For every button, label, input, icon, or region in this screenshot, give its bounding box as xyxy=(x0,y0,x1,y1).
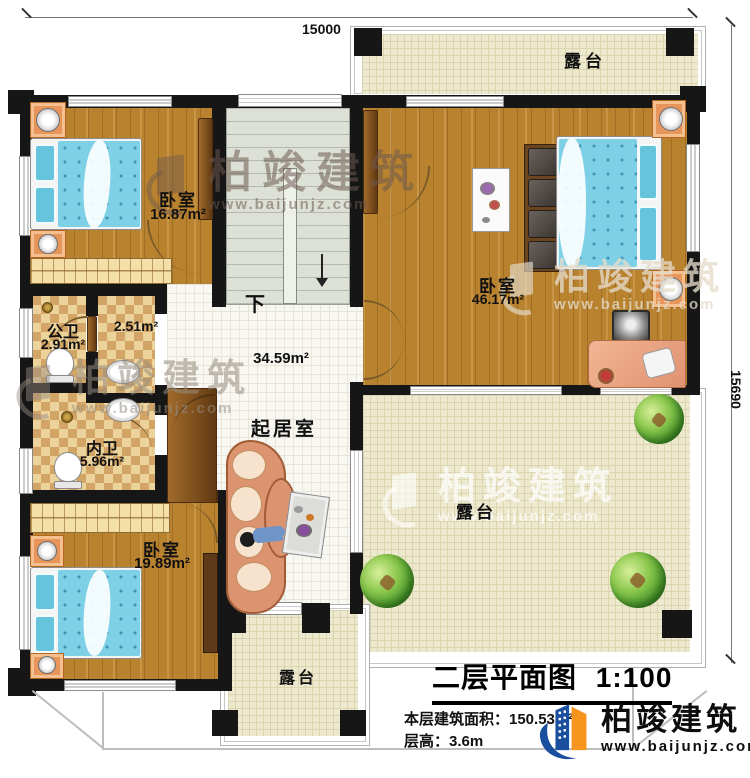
pillow xyxy=(34,573,56,611)
door-bedroom-right xyxy=(363,110,378,214)
wall-stairs-right xyxy=(350,95,363,307)
column-post xyxy=(354,28,382,56)
wall-bathroom-right xyxy=(155,282,167,314)
column-post xyxy=(662,610,692,638)
potted-tree xyxy=(634,394,684,444)
sofa-cushion xyxy=(230,486,262,522)
flower-decor xyxy=(480,182,495,195)
roof-eave-diagonal xyxy=(32,690,104,749)
brand-text: 柏竣建筑 www.baijunjz.com xyxy=(601,704,750,755)
lamp xyxy=(38,234,58,254)
column-post xyxy=(340,710,366,736)
tv xyxy=(612,310,650,342)
window xyxy=(410,386,562,395)
dimension-top-value: 15000 xyxy=(302,21,341,37)
window xyxy=(238,94,342,107)
lamp xyxy=(659,107,683,131)
terrace-top-floor xyxy=(362,34,698,94)
room-area-living: 34.59m² xyxy=(253,350,309,367)
window xyxy=(350,450,363,553)
window xyxy=(68,96,172,107)
window xyxy=(686,144,700,252)
lamp xyxy=(37,541,57,561)
decor-item xyxy=(294,506,303,513)
drawing-scale: 1:100 xyxy=(596,662,673,693)
wall-stairs-left xyxy=(212,95,226,307)
window xyxy=(19,448,33,494)
potted-tree xyxy=(610,552,666,608)
pillow xyxy=(638,144,658,200)
room-label-terrace-bottom: 露台 xyxy=(279,664,317,688)
washbasin xyxy=(106,360,140,384)
column-post xyxy=(666,28,694,56)
room-label-terrace-top: 露台 xyxy=(564,47,606,72)
flower-decor xyxy=(598,368,614,384)
column-post xyxy=(212,710,238,736)
floor-drain xyxy=(42,302,53,313)
desk-shelf xyxy=(203,553,218,653)
brand-logo-icon xyxy=(538,698,594,760)
pillow xyxy=(638,206,658,262)
room-area-bedroom-right: 46.17m² xyxy=(472,291,524,307)
dimension-right-value: 15690 xyxy=(728,370,744,409)
washbasin xyxy=(106,398,140,422)
dimension-line-right xyxy=(731,25,732,663)
floor-drain xyxy=(61,411,73,423)
sofa-cushion xyxy=(236,562,272,592)
lamp xyxy=(36,108,60,132)
wall-living-right xyxy=(350,382,363,452)
flower-decor xyxy=(489,200,500,210)
stairs-direction-label: 下 xyxy=(245,288,265,317)
decor-item xyxy=(482,217,490,223)
pillow xyxy=(34,186,56,224)
dimension-line-top xyxy=(25,17,693,18)
toilet xyxy=(54,452,82,482)
toilet xyxy=(46,348,74,378)
wall-living-bottom-stub xyxy=(302,603,330,633)
room-label-living: 起居室 xyxy=(251,414,317,441)
door-bedroom-top-left xyxy=(198,118,213,220)
room-area-bedroom-top-left: 16.87m² xyxy=(150,206,206,223)
pillow xyxy=(34,144,56,182)
staircase-arrow-head xyxy=(316,278,328,287)
toilet-tank xyxy=(54,481,82,489)
floor-height-note: 层高：3.6m xyxy=(404,730,483,751)
wall-bathroom-right xyxy=(155,385,167,415)
door-public-bathroom xyxy=(87,316,97,352)
bed-sheet-fold xyxy=(558,138,586,268)
wall-bathroom-right xyxy=(155,455,167,492)
flower-decor xyxy=(306,514,314,521)
window xyxy=(19,308,33,358)
sofa-cushion xyxy=(232,450,266,480)
floor-plan-canvas: 15000 15690 xyxy=(0,0,750,778)
potted-tree xyxy=(360,554,414,608)
wardrobe xyxy=(30,503,170,533)
toilet-tank xyxy=(46,375,74,383)
roof-eave-line xyxy=(102,692,104,750)
lamp xyxy=(38,656,56,674)
flower-decor xyxy=(296,524,312,537)
brand-logo: 柏竣建筑 www.baijunjz.com xyxy=(538,698,750,760)
room-label-terrace-right: 露台 xyxy=(456,498,496,523)
window xyxy=(64,680,176,691)
staircase-direction-arrow xyxy=(321,254,323,280)
brand-url: www.baijunjz.com xyxy=(601,738,750,755)
wall-public-bath-bottom xyxy=(20,383,98,393)
window xyxy=(406,96,504,107)
room-area-wash-area: 2.51m² xyxy=(114,318,158,334)
pillow xyxy=(34,615,56,653)
lamp xyxy=(659,277,683,301)
wall-bathroom-divider xyxy=(86,294,98,316)
staircase-rail xyxy=(283,168,297,304)
room-area-bedroom-bottom-left: 19.89m² xyxy=(134,555,190,572)
wardrobe xyxy=(30,258,172,284)
room-area-private-bathroom: 5.96m² xyxy=(80,453,124,469)
brand-name: 柏竣建筑 xyxy=(601,704,750,735)
room-area-public-bathroom: 2.91m² xyxy=(41,336,85,352)
drawing-title-text: 二层平面图 xyxy=(432,662,577,693)
